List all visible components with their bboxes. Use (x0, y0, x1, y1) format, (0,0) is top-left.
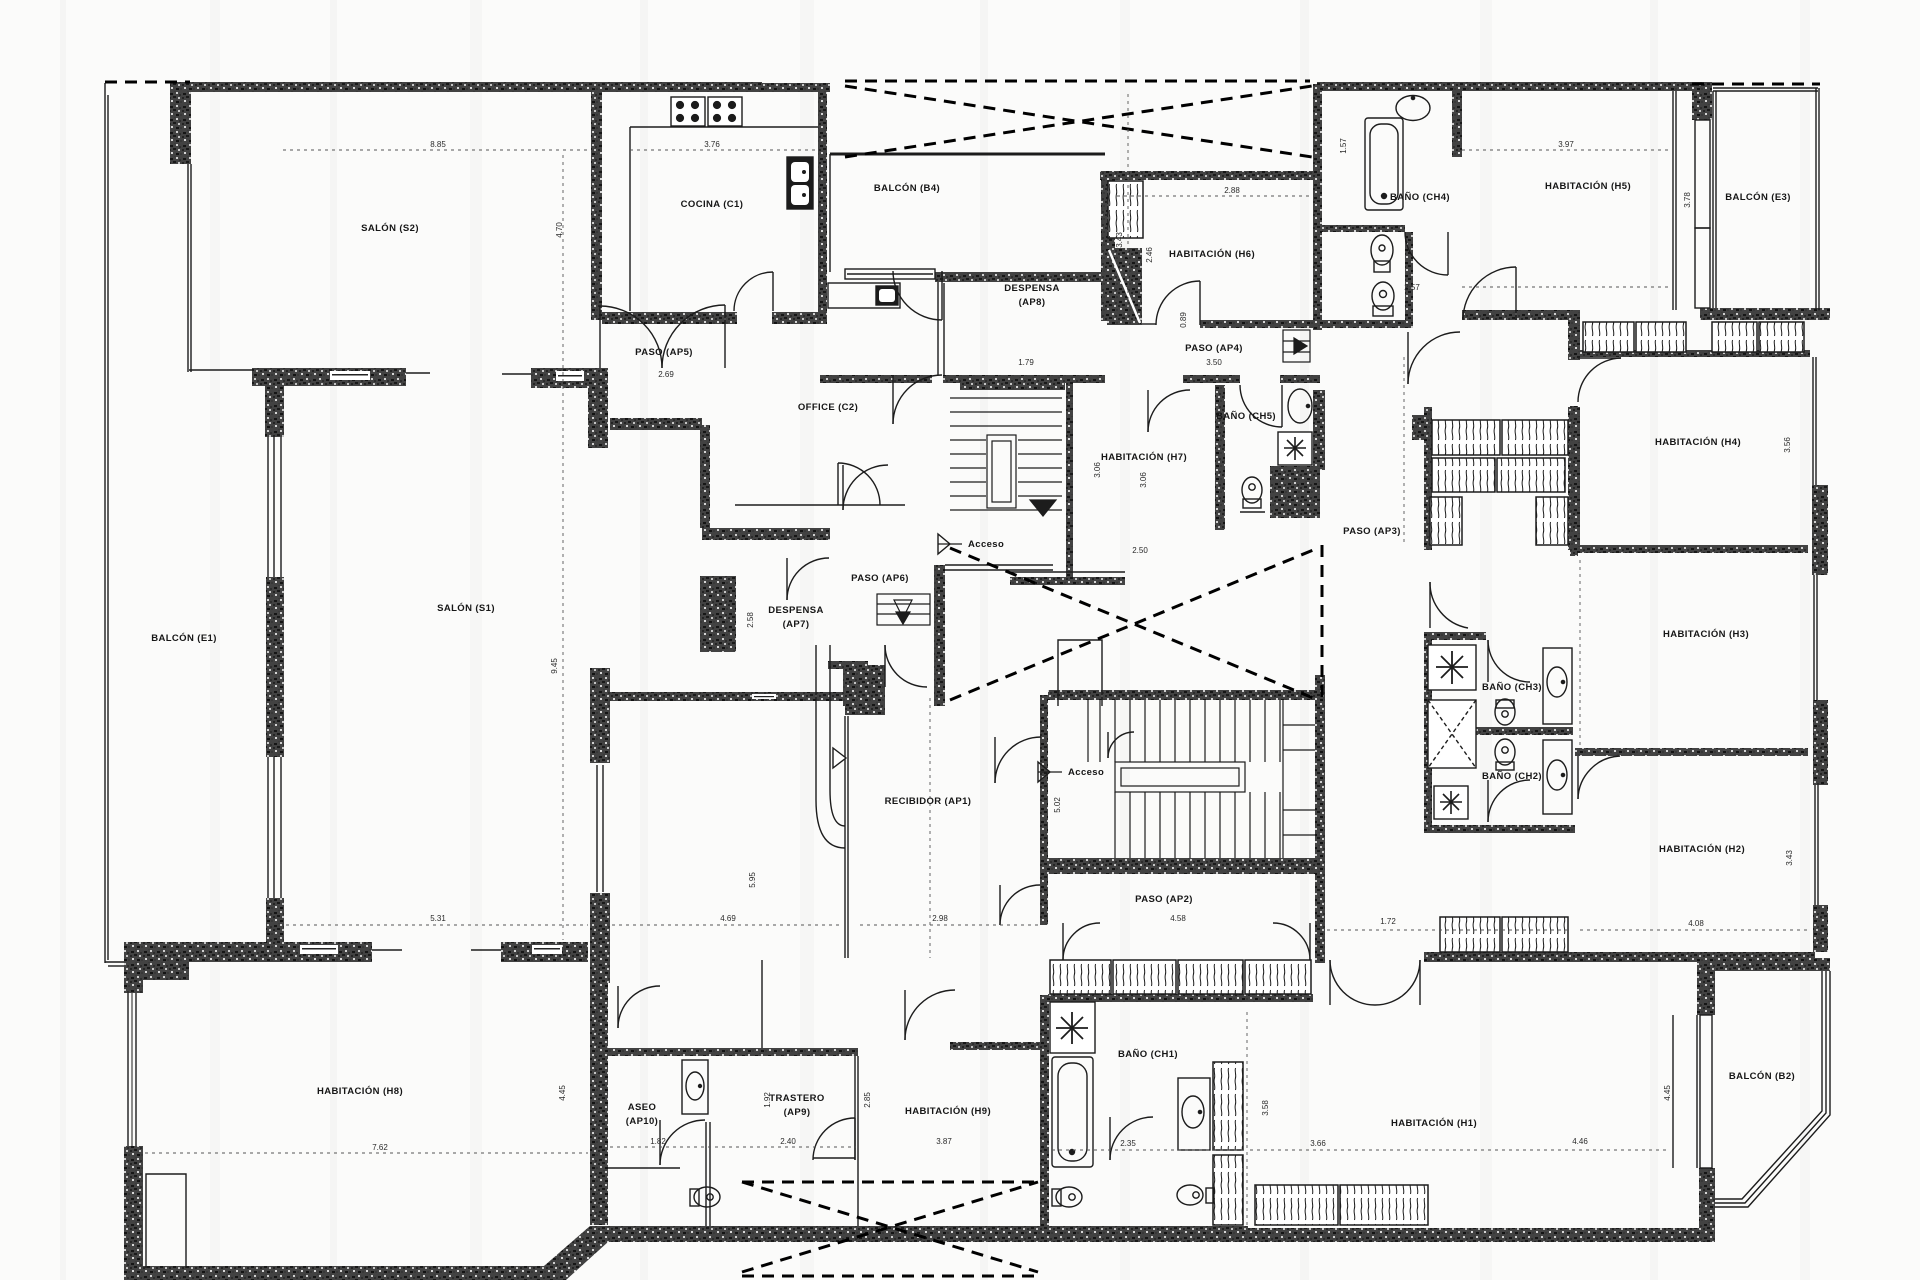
svg-text:BAÑO (CH2): BAÑO (CH2) (1482, 771, 1542, 782)
svg-text:PASO (AP6): PASO (AP6) (851, 573, 909, 584)
svg-text:1.79: 1.79 (1018, 358, 1034, 367)
svg-text:3.66: 3.66 (1310, 1139, 1326, 1148)
svg-text:3.56: 3.56 (1783, 437, 1792, 453)
svg-text:3.58: 3.58 (1261, 1100, 1270, 1116)
svg-text:(AP8): (AP8) (1019, 297, 1046, 308)
svg-text:2.35: 2.35 (1120, 1139, 1136, 1148)
svg-text:2.58: 2.58 (746, 612, 755, 628)
svg-text:5.31: 5.31 (430, 914, 446, 923)
svg-text:HABITACIÓN (H2): HABITACIÓN (H2) (1659, 843, 1745, 855)
svg-text:2.69: 2.69 (658, 370, 674, 379)
svg-text:HABITACIÓN (H6): HABITACIÓN (H6) (1169, 248, 1255, 260)
svg-text:COCINA (C1): COCINA (C1) (681, 199, 744, 210)
svg-text:OFFICE (C2): OFFICE (C2) (798, 402, 858, 413)
svg-text:4.58: 4.58 (1170, 914, 1186, 923)
svg-text:HABITACIÓN (H9): HABITACIÓN (H9) (905, 1105, 991, 1117)
svg-text:2.46: 2.46 (1145, 247, 1154, 263)
svg-text:1.72: 1.72 (1380, 917, 1396, 926)
svg-text:3.50: 3.50 (1206, 358, 1222, 367)
svg-text:PASO (AP4): PASO (AP4) (1185, 343, 1243, 354)
svg-text:3.97: 3.97 (1558, 140, 1574, 149)
svg-text:PASO (AP3): PASO (AP3) (1343, 526, 1401, 537)
svg-text:HABITACIÓN (H5): HABITACIÓN (H5) (1545, 180, 1631, 192)
svg-text:BALCÓN (E1): BALCÓN (E1) (151, 632, 217, 644)
svg-text:4.08: 4.08 (1688, 919, 1704, 928)
svg-text:3.76: 3.76 (704, 140, 720, 149)
svg-text:(AP10): (AP10) (626, 1116, 659, 1127)
svg-text:2.88: 2.88 (1224, 186, 1240, 195)
svg-text:RECIBIDOR (AP1): RECIBIDOR (AP1) (885, 796, 972, 807)
svg-text:1.92: 1.92 (763, 1092, 772, 1108)
svg-text:SALÓN (S1): SALÓN (S1) (437, 602, 495, 614)
svg-text:BAÑO (CH1): BAÑO (CH1) (1118, 1049, 1178, 1060)
svg-text:Acceso: Acceso (1068, 767, 1104, 778)
svg-text:BALCÓN (E3): BALCÓN (E3) (1725, 191, 1791, 203)
svg-text:HABITACIÓN (H3): HABITACIÓN (H3) (1663, 628, 1749, 640)
svg-text:1.57: 1.57 (1339, 138, 1348, 154)
svg-text:HABITACIÓN (H4): HABITACIÓN (H4) (1655, 436, 1741, 448)
svg-text:3.43: 3.43 (1785, 850, 1794, 866)
svg-text:DESPENSA: DESPENSA (768, 605, 823, 616)
svg-text:1.82: 1.82 (650, 1137, 666, 1146)
svg-text:8.85: 8.85 (430, 140, 446, 149)
svg-text:BAÑO (CH3): BAÑO (CH3) (1482, 682, 1542, 693)
svg-text:TRASTERO: TRASTERO (769, 1093, 824, 1104)
svg-text:3.78: 3.78 (1683, 192, 1692, 208)
svg-text:2.50: 2.50 (1132, 546, 1148, 555)
svg-text:4.45: 4.45 (558, 1085, 567, 1101)
svg-text:ASEO: ASEO (628, 1102, 657, 1113)
svg-text:4.69: 4.69 (720, 914, 736, 923)
svg-text:3.06: 3.06 (1093, 462, 1102, 478)
svg-text:Acceso: Acceso (968, 539, 1004, 550)
svg-text:2.57: 2.57 (1404, 283, 1420, 292)
svg-text:3.43: 3.43 (1115, 232, 1124, 248)
svg-text:BALCÓN (B4): BALCÓN (B4) (874, 182, 940, 194)
svg-text:HABITACIÓN (H1): HABITACIÓN (H1) (1391, 1117, 1477, 1129)
svg-text:BAÑO (CH5): BAÑO (CH5) (1216, 411, 1276, 422)
svg-text:3.06: 3.06 (1139, 472, 1148, 488)
svg-text:4.45: 4.45 (1663, 1085, 1672, 1101)
svg-text:5.02: 5.02 (1053, 797, 1062, 813)
svg-text:4.70: 4.70 (555, 222, 564, 238)
svg-text:4.46: 4.46 (1572, 1137, 1588, 1146)
svg-text:DESPENSA: DESPENSA (1004, 283, 1059, 294)
svg-text:BALCÓN (B2): BALCÓN (B2) (1729, 1070, 1795, 1082)
svg-text:(AP7): (AP7) (783, 619, 810, 630)
svg-text:PASO (AP2): PASO (AP2) (1135, 894, 1193, 905)
svg-text:(AP9): (AP9) (784, 1107, 811, 1118)
svg-text:SALÓN (S2): SALÓN (S2) (361, 222, 419, 234)
svg-text:9.45: 9.45 (550, 658, 559, 674)
svg-text:7.62: 7.62 (372, 1143, 388, 1152)
svg-text:2.85: 2.85 (863, 1092, 872, 1108)
svg-text:2.98: 2.98 (932, 914, 948, 923)
svg-text:0.89: 0.89 (1179, 312, 1188, 328)
svg-text:HABITACIÓN (H7): HABITACIÓN (H7) (1101, 451, 1187, 463)
svg-text:PASO (AP5): PASO (AP5) (635, 347, 693, 358)
svg-text:HABITACIÓN (H8): HABITACIÓN (H8) (317, 1085, 403, 1097)
svg-text:BAÑO (CH4): BAÑO (CH4) (1390, 192, 1450, 203)
svg-text:2.40: 2.40 (780, 1137, 796, 1146)
svg-text:5.95: 5.95 (748, 872, 757, 888)
svg-text:3.87: 3.87 (936, 1137, 952, 1146)
